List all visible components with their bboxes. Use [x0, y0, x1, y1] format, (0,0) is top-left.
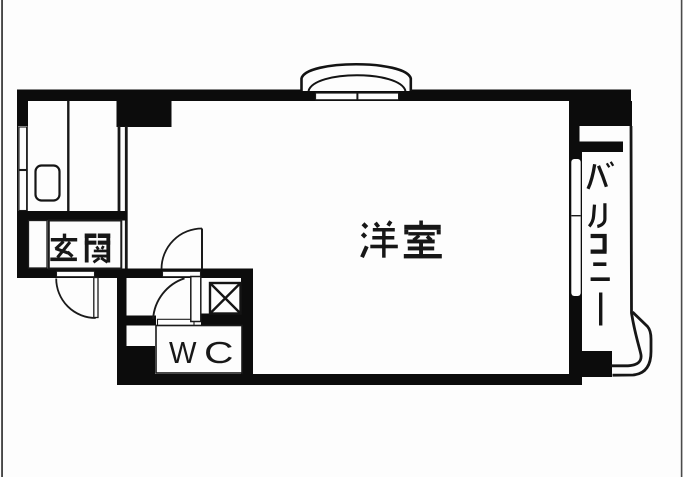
svg-text:C: C [204, 335, 234, 370]
svg-text:W: W [169, 335, 197, 370]
